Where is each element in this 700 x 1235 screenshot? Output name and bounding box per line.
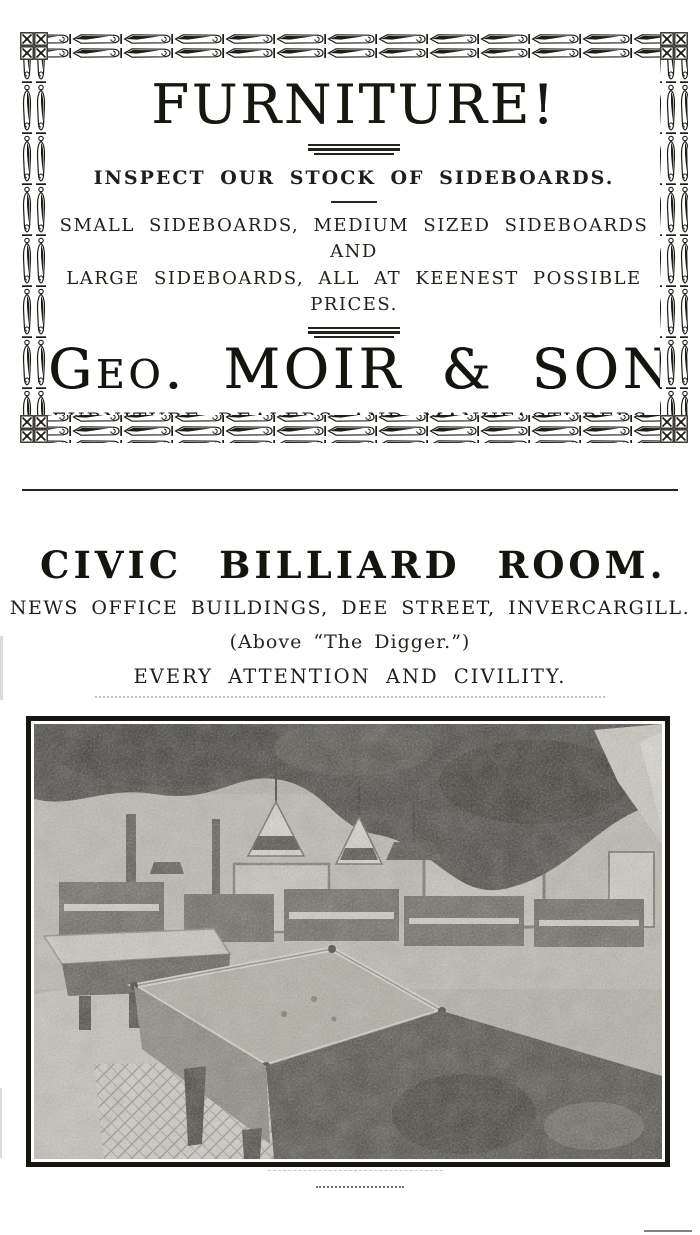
billiard-title: CIVIC BILLIARD ROOM. (40, 543, 667, 587)
billiard-title-row: CIVIC BILLIARD ROOM. (0, 543, 700, 587)
triple-rule-divider (308, 144, 400, 155)
furniture-body-line-2: LARGE SIDEBOARDS, ALL AT KEENEST POSSIBL… (66, 268, 641, 315)
furniture-body: SMALL SIDEBOARDS, MEDIUM SIZED SIDEBOARD… (48, 213, 660, 317)
furniture-ad-content: FURNITURE! INSPECT OUR STOCK OF SIDEBOAR… (48, 60, 660, 415)
section-divider-rule (22, 489, 678, 491)
furniture-subheadline: INSPECT OUR STOCK OF SIDEBOARDS. (48, 167, 660, 189)
single-rule-divider (331, 201, 377, 203)
furniture-body-line-1: SMALL SIDEBOARDS, MEDIUM SIZED SIDEBOARD… (60, 215, 649, 262)
scan-artifact (0, 1088, 2, 1158)
billiard-location-note: (Above “The Digger.”) (0, 631, 700, 653)
faint-dash-rule (268, 1170, 443, 1171)
halftone-photo-illustration (34, 724, 662, 1159)
scanned-newspaper-page: FURNITURE! INSPECT OUR STOCK OF SIDEBOAR… (0, 0, 700, 1235)
furniture-headline: FURNITURE! (48, 76, 660, 134)
faint-dotted-rule (95, 696, 605, 698)
scan-artifact (0, 636, 3, 700)
company-descriptor: FURNITURE DEALERS AND MANUFACTURERS, (48, 408, 660, 415)
scan-artifact (644, 1230, 692, 1232)
furniture-ad: FURNITURE! INSPECT OUR STOCK OF SIDEBOAR… (20, 32, 688, 443)
faint-dash-rule (316, 1186, 404, 1188)
billiard-tagline: EVERY ATTENTION AND CIVILITY. (0, 665, 700, 688)
billiard-address: NEWS OFFICE BUILDINGS, DEE STREET, INVER… (0, 597, 700, 619)
billiard-room-photo (26, 716, 670, 1167)
company-name: Geo. MOIR & SON, (48, 342, 660, 397)
